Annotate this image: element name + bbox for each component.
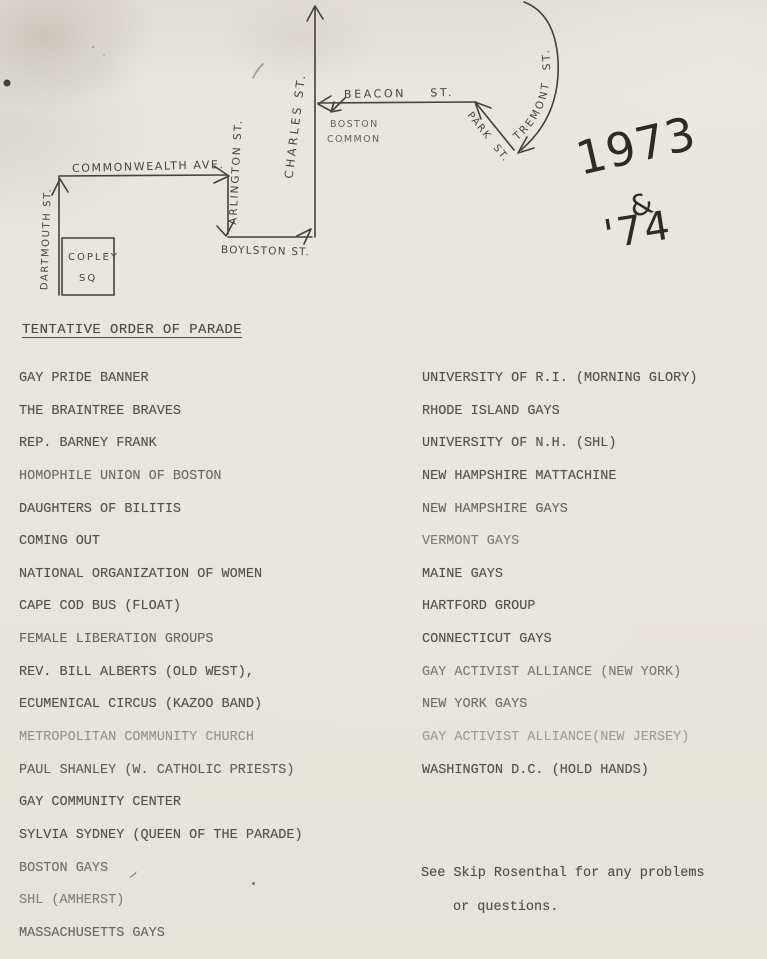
parade-item: COMING OUT	[19, 534, 303, 567]
parade-item: DAUGHTERS OF BILITIS	[19, 502, 303, 535]
contact-note-line: or questions.	[453, 900, 705, 915]
parade-item: NEW YORK GAYS	[422, 697, 697, 730]
parade-item: CAPE COD BUS (FLOAT)	[19, 599, 303, 632]
charles-st-label: CHARLES ST.	[282, 72, 309, 180]
parade-item: RHODE ISLAND GAYS	[422, 404, 697, 437]
scanned-document-page: DARTMOUTH ST. COPLEY SQ COMMONWEALTH AVE…	[0, 0, 767, 959]
boston-common-label: COMMON	[327, 134, 381, 145]
boylston-st-line	[228, 229, 312, 244]
contact-note: See Skip Rosenthal for any problems or q…	[421, 866, 705, 915]
parade-item: UNIVERSITY OF R.I. (MORNING GLORY)	[422, 371, 697, 404]
year-note-74: '74	[601, 202, 675, 258]
parade-item: GAY PRIDE BANNER	[19, 371, 303, 404]
charles-st-line	[307, 6, 323, 237]
parade-item: NEW HAMPSHIRE MATTACHINE	[422, 469, 697, 502]
parade-item: CONNECTICUT GAYS	[422, 632, 697, 665]
paper-speck	[92, 46, 94, 48]
copley-sq-box	[62, 238, 114, 295]
parade-item: REV. BILL ALBERTS (OLD WEST),	[19, 665, 303, 698]
paper-speck	[103, 54, 105, 56]
arlington-st-label: ARLINGTON ST.	[227, 119, 245, 226]
paper-speck	[4, 80, 11, 87]
parade-item: UNIVERSITY OF N.H. (SHL)	[422, 436, 697, 469]
parade-item: MAINE GAYS	[422, 567, 697, 600]
parade-item: BOSTON GAYS	[19, 861, 303, 894]
parade-list-right: UNIVERSITY OF R.I. (MORNING GLORY) RHODE…	[422, 371, 697, 795]
parade-item: THE BRAINTREE BRAVES	[19, 404, 303, 437]
paper-speck	[252, 882, 255, 885]
parade-item: GAY COMMUNITY CENTER	[19, 795, 303, 828]
beacon-st-label: BEACON ST.	[344, 86, 454, 101]
parade-item: GAY ACTIVIST ALLIANCE (NEW YORK)	[422, 665, 697, 698]
dartmouth-st-line	[52, 177, 68, 295]
parade-item: WASHINGTON D.C. (HOLD HANDS)	[422, 763, 697, 796]
parade-item: HOMOPHILE UNION OF BOSTON	[19, 469, 303, 502]
dartmouth-st-label: DARTMOUTH ST.	[39, 187, 54, 290]
parade-route-map: DARTMOUTH ST. COPLEY SQ COMMONWEALTH AVE…	[0, 0, 767, 315]
parade-item: VERMONT GAYS	[422, 534, 697, 567]
parade-item: PAUL SHANLEY (W. CATHOLIC PRIESTS)	[19, 763, 303, 796]
parade-item: SHL (AMHERST)	[19, 893, 303, 926]
boylston-st-label: BOYLSTON ST.	[221, 244, 310, 258]
commonwealth-ave-label: COMMONWEALTH AVE.	[72, 158, 225, 175]
tremont-st-label: TREMONT ST.	[510, 47, 553, 143]
year-note-1973: 1973	[571, 106, 701, 186]
contact-note-line: See Skip Rosenthal for any problems	[421, 866, 705, 881]
parade-item: FEMALE LIBERATION GROUPS	[19, 632, 303, 665]
parade-item: MASSACHUSETTS GAYS	[19, 926, 303, 959]
parade-item: ECUMENICAL CIRCUS (KAZOO BAND)	[19, 697, 303, 730]
boston-common-label: BOSTON	[330, 119, 379, 130]
parade-list-left: GAY PRIDE BANNER THE BRAINTREE BRAVES RE…	[19, 371, 303, 959]
page-title: TENTATIVE ORDER OF PARADE	[22, 322, 242, 338]
copley-sq-label: SQ	[79, 273, 97, 284]
parade-item: NATIONAL ORGANIZATION OF WOMEN	[19, 567, 303, 600]
parade-item: GAY ACTIVIST ALLIANCE(NEW JERSEY)	[422, 730, 697, 763]
parade-item: REP. BARNEY FRANK	[19, 436, 303, 469]
parade-item: HARTFORD GROUP	[422, 599, 697, 632]
parade-item: NEW HAMPSHIRE GAYS	[422, 502, 697, 535]
stray-pen-mark	[253, 64, 263, 78]
copley-sq-label: COPLEY	[68, 252, 119, 263]
parade-item: METROPOLITAN COMMUNITY CHURCH	[19, 730, 303, 763]
parade-item: SYLVIA SYDNEY (QUEEN OF THE PARADE)	[19, 828, 303, 861]
